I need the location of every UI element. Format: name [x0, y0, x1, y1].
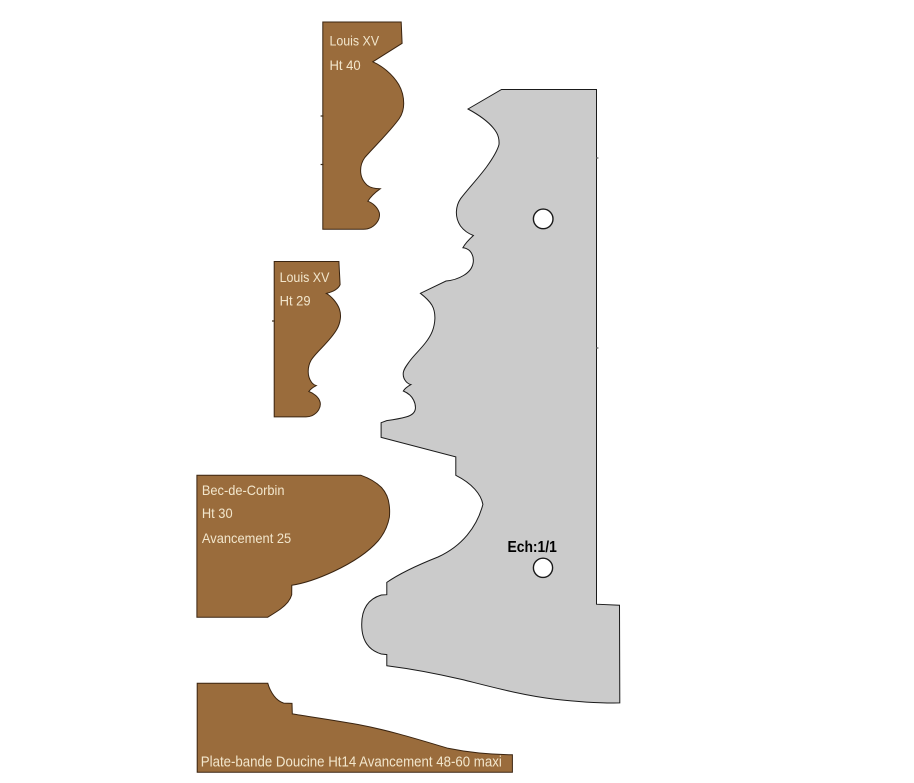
svg-text:Avancement 25: Avancement 25: [202, 530, 291, 546]
svg-text:Ht 40: Ht 40: [330, 57, 361, 73]
svg-text:Ech:1/1: Ech:1/1: [508, 539, 557, 556]
svg-text:Plate-bande Doucine Ht14 Avanc: Plate-bande Doucine Ht14 Avancement 48-6…: [201, 754, 502, 770]
svg-text:Ht 29: Ht 29: [280, 293, 311, 309]
svg-text:Louis XV: Louis XV: [280, 269, 330, 285]
svg-text:Ht 30: Ht 30: [202, 505, 233, 521]
svg-text:Bec-de-Corbin: Bec-de-Corbin: [202, 482, 285, 498]
svg-text:Louis XV: Louis XV: [330, 33, 380, 49]
